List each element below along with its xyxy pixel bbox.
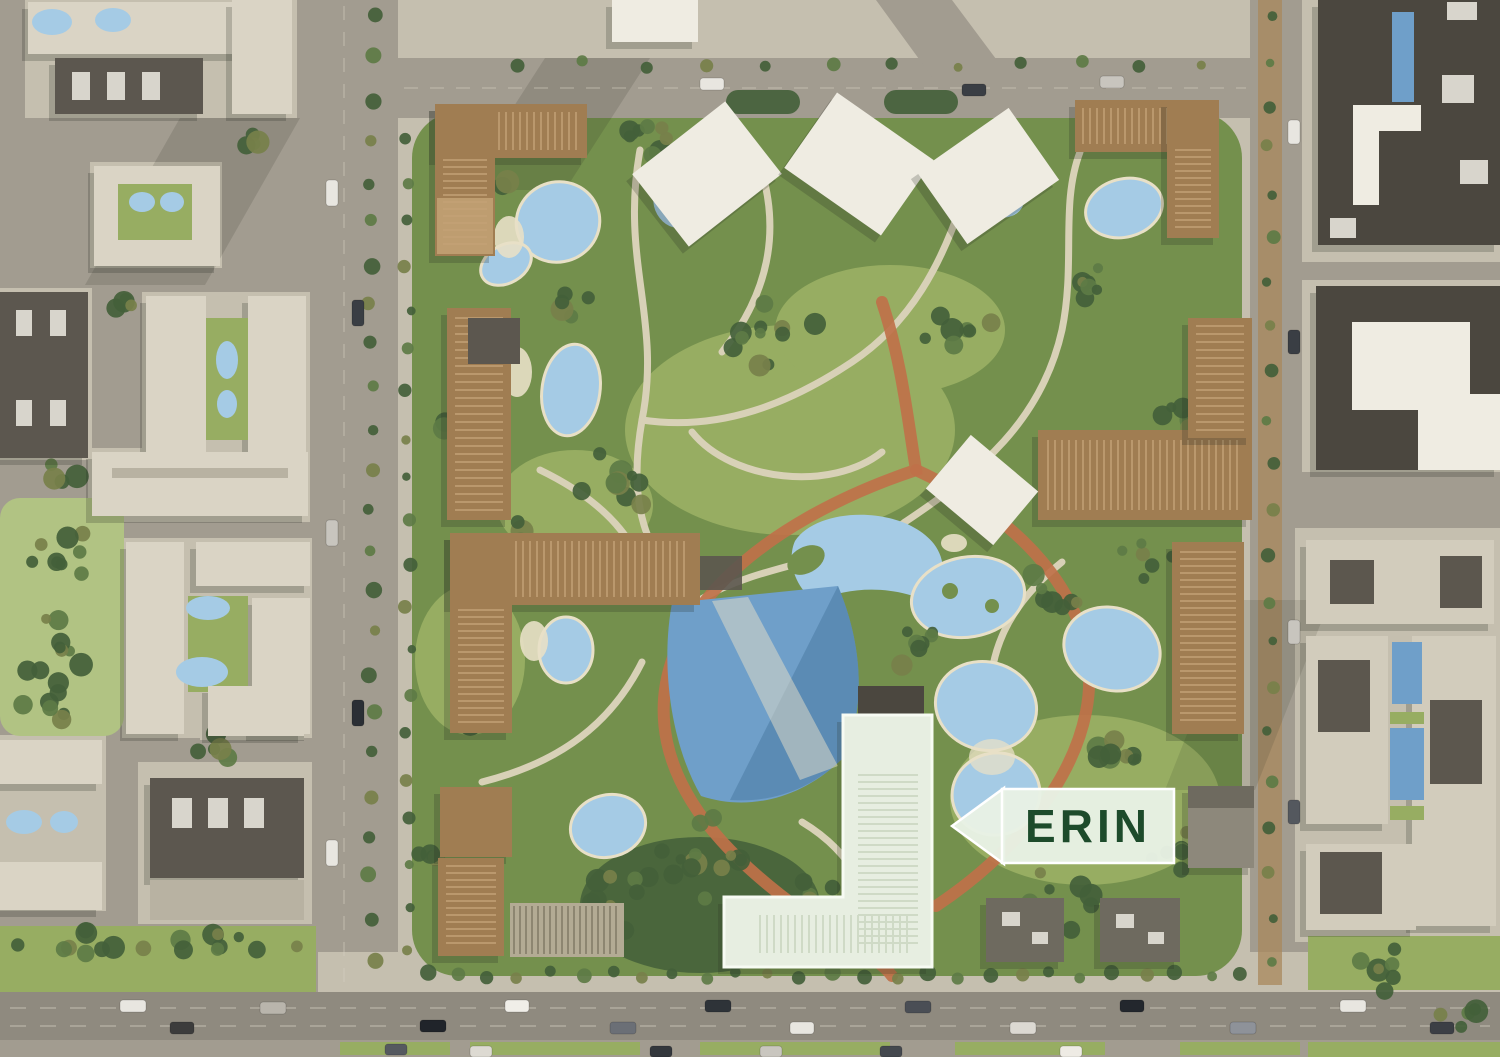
pool-deck	[520, 621, 548, 661]
pool-deck	[494, 216, 524, 258]
building	[1100, 898, 1180, 962]
tree	[420, 964, 436, 980]
tree	[682, 858, 701, 877]
tree	[631, 495, 651, 515]
south-road	[0, 992, 1500, 1040]
tree	[78, 922, 94, 938]
courtyard	[1390, 806, 1424, 820]
tree	[363, 831, 375, 843]
tree	[1100, 744, 1121, 765]
tree	[365, 546, 376, 557]
tree	[69, 653, 93, 677]
car	[1100, 76, 1124, 88]
tree	[1267, 957, 1277, 967]
pool-island	[942, 583, 958, 599]
tree	[1268, 11, 1278, 21]
tree	[1262, 416, 1272, 426]
tree	[749, 354, 771, 376]
tree	[212, 928, 224, 940]
tree	[629, 884, 645, 900]
tree	[944, 336, 963, 355]
tree	[364, 258, 381, 275]
tree	[952, 973, 964, 985]
tree	[1233, 967, 1247, 981]
tree	[1267, 681, 1280, 694]
tree	[1136, 547, 1150, 561]
building	[196, 542, 310, 586]
verge	[884, 90, 958, 114]
roof-unit	[1032, 932, 1048, 944]
building	[0, 740, 102, 784]
tree	[902, 626, 913, 637]
verge	[700, 1042, 890, 1055]
terrace	[437, 198, 493, 254]
tree	[636, 972, 648, 984]
tree	[363, 336, 376, 349]
tree	[1267, 503, 1280, 516]
tree	[735, 854, 747, 866]
tree	[892, 973, 904, 985]
tree	[593, 447, 606, 460]
roof-wing	[468, 318, 520, 364]
tree	[755, 328, 766, 339]
tree	[366, 746, 377, 757]
car	[1230, 1022, 1256, 1034]
car	[650, 1046, 672, 1057]
tree	[775, 327, 790, 342]
courtyard-pool	[6, 810, 42, 834]
tree	[698, 891, 712, 905]
car	[962, 84, 986, 96]
tree	[367, 953, 383, 969]
roof-unit	[1447, 2, 1477, 20]
tree	[368, 8, 383, 23]
roof-unit	[208, 798, 228, 828]
tree	[663, 865, 683, 885]
park-building	[1172, 542, 1244, 734]
tree	[361, 667, 377, 683]
tree	[51, 556, 63, 568]
tree	[1014, 57, 1026, 69]
tree	[1267, 230, 1281, 244]
roof-detail	[1188, 786, 1254, 808]
building	[146, 296, 206, 458]
tree	[982, 313, 1001, 332]
tree	[41, 614, 51, 624]
car	[385, 1044, 407, 1055]
tower-roof	[858, 686, 924, 716]
building	[986, 898, 1064, 962]
tree	[640, 119, 655, 134]
tree	[407, 307, 416, 316]
building	[150, 880, 304, 920]
courtyard	[1390, 712, 1424, 724]
car	[1288, 120, 1300, 144]
tree	[641, 62, 653, 74]
tree	[291, 941, 303, 953]
roof-unit	[107, 72, 125, 100]
park-building	[450, 533, 512, 733]
tree	[365, 214, 377, 226]
tree	[404, 689, 417, 702]
car	[705, 1000, 731, 1012]
tree	[35, 538, 48, 551]
tree	[1062, 921, 1080, 939]
tree	[1128, 754, 1139, 765]
tree	[1016, 968, 1029, 981]
tree	[74, 566, 89, 581]
rooftop-pool	[95, 8, 131, 32]
tree	[136, 941, 152, 957]
tree	[248, 941, 266, 959]
tree	[1093, 263, 1103, 273]
car	[352, 300, 364, 326]
building	[208, 686, 304, 736]
roof-unit	[50, 310, 66, 336]
tree	[1207, 971, 1217, 981]
tree	[1261, 548, 1275, 562]
tree	[1117, 546, 1127, 556]
tree	[94, 941, 110, 957]
tree	[1265, 364, 1279, 378]
tree	[496, 170, 520, 194]
tree	[573, 482, 591, 500]
pool-deck	[969, 739, 1015, 775]
tree	[56, 941, 72, 957]
pool-deck	[941, 534, 967, 552]
tree	[1022, 564, 1044, 586]
tree	[1373, 963, 1384, 974]
building	[0, 292, 88, 458]
tree	[190, 743, 206, 759]
tree	[545, 966, 556, 977]
tree	[1074, 973, 1085, 984]
car	[790, 1022, 814, 1034]
tree	[891, 654, 912, 675]
tree	[1269, 914, 1278, 923]
courtyard-pool	[50, 811, 78, 833]
roof-unit	[1002, 912, 1020, 926]
tree	[403, 178, 414, 189]
tree	[402, 945, 412, 955]
tree	[368, 425, 378, 435]
car	[326, 840, 338, 866]
pool-island	[985, 599, 999, 613]
tree	[700, 59, 713, 72]
car	[610, 1022, 636, 1034]
courtyard-pool	[1390, 728, 1424, 800]
roof-unit	[244, 798, 264, 828]
roof-wing	[1318, 660, 1370, 732]
tree	[405, 860, 414, 869]
tree	[655, 121, 668, 134]
tree	[403, 811, 416, 824]
tree	[910, 640, 927, 657]
roof-wing	[1320, 852, 1382, 914]
tree	[370, 625, 380, 635]
tree	[1385, 957, 1399, 971]
tree	[1262, 726, 1271, 735]
tree	[398, 600, 412, 614]
tree	[1145, 558, 1160, 573]
roof-detail	[112, 468, 288, 478]
building	[248, 296, 306, 458]
courtyard	[118, 184, 192, 240]
tree	[827, 58, 841, 72]
tree	[1141, 968, 1154, 981]
tree	[365, 47, 381, 63]
tree	[1455, 1021, 1467, 1033]
tree	[1262, 866, 1275, 879]
building	[1418, 394, 1500, 470]
tree	[1076, 55, 1089, 68]
roof-unit	[172, 798, 192, 828]
car	[352, 700, 364, 726]
tree	[364, 791, 378, 805]
roof-unit	[1460, 160, 1488, 184]
roof-wing	[1440, 556, 1482, 608]
tree	[1263, 597, 1275, 609]
tree	[366, 463, 380, 477]
tree	[654, 843, 669, 858]
tree	[606, 472, 627, 493]
verge	[726, 90, 800, 114]
tree	[365, 913, 379, 927]
tree	[43, 468, 65, 490]
tree	[920, 333, 931, 344]
tree	[1264, 101, 1276, 113]
tree	[667, 968, 678, 979]
tree	[1035, 867, 1046, 878]
tree	[48, 610, 68, 630]
car	[170, 1022, 194, 1034]
verge	[1180, 1042, 1300, 1055]
tree	[365, 135, 376, 146]
car	[905, 1001, 931, 1013]
tree	[400, 774, 413, 787]
tree	[1136, 538, 1146, 548]
tree	[1138, 573, 1149, 584]
tree	[365, 93, 381, 109]
tree	[17, 661, 37, 681]
tree	[368, 380, 379, 391]
tree	[1266, 59, 1274, 67]
tree	[1388, 942, 1401, 955]
building	[0, 862, 102, 910]
tree	[963, 324, 976, 337]
roof-unit	[50, 400, 66, 426]
tree	[401, 435, 410, 444]
car	[1010, 1022, 1036, 1034]
tree	[582, 291, 595, 304]
roof-wing	[1330, 560, 1374, 604]
tree	[1041, 591, 1063, 613]
courtyard-pool	[1392, 642, 1422, 704]
courtyard-pool	[129, 192, 155, 212]
park-structure	[700, 556, 742, 590]
tree	[756, 295, 774, 313]
tree	[1352, 952, 1370, 970]
building	[612, 0, 698, 42]
tree	[73, 545, 86, 558]
tree	[804, 313, 826, 335]
roof-unit	[1116, 914, 1134, 928]
tree	[608, 966, 620, 978]
car	[880, 1046, 902, 1057]
roof-unit	[1330, 218, 1356, 238]
car	[1430, 1022, 1454, 1034]
tree	[363, 179, 374, 190]
lawn	[1308, 936, 1500, 990]
building	[92, 452, 308, 516]
tree	[511, 59, 525, 73]
tree	[1262, 821, 1275, 834]
tree	[13, 695, 32, 714]
tree	[50, 684, 67, 701]
tree	[246, 130, 269, 153]
car	[760, 1046, 782, 1057]
park-building	[1167, 100, 1219, 238]
rooftop-pool	[32, 9, 72, 35]
courtyard-pool	[186, 596, 230, 620]
tree	[26, 556, 38, 568]
tree	[511, 515, 525, 529]
tree	[1261, 139, 1273, 151]
tree	[555, 295, 569, 309]
roof-unit	[72, 72, 90, 100]
car	[700, 78, 724, 90]
tree	[56, 527, 78, 549]
building	[232, 0, 292, 114]
car	[1288, 800, 1300, 824]
lawn	[1308, 1042, 1500, 1057]
tree	[1269, 637, 1278, 646]
car	[470, 1046, 492, 1057]
tree	[885, 58, 897, 70]
tree	[760, 61, 771, 72]
car	[326, 520, 338, 546]
tree	[211, 943, 224, 956]
tree	[406, 903, 415, 912]
tree	[399, 133, 411, 145]
tree	[367, 704, 382, 719]
tree	[603, 870, 617, 884]
car	[1288, 330, 1300, 354]
tree	[401, 214, 412, 225]
tree	[1464, 999, 1488, 1023]
tree	[399, 727, 410, 738]
tree	[726, 850, 736, 860]
courtyard-pool	[176, 657, 228, 687]
tree	[1266, 776, 1279, 789]
tree	[77, 945, 95, 963]
tree	[402, 342, 414, 354]
courtyard-pool	[160, 192, 184, 212]
tree	[54, 642, 66, 654]
roof-unit	[16, 400, 32, 426]
roof-wing	[1430, 700, 1482, 784]
tree	[42, 700, 58, 716]
park-building	[440, 787, 512, 857]
courtyard-pool	[216, 341, 238, 379]
tree	[125, 300, 137, 312]
tree	[1044, 884, 1054, 894]
tree	[1376, 982, 1394, 1000]
tree	[1265, 320, 1275, 330]
tree	[1132, 60, 1145, 73]
tree	[510, 972, 521, 983]
lawn-strip	[0, 926, 316, 992]
tree	[577, 968, 592, 983]
tree	[174, 940, 193, 959]
tree	[366, 582, 382, 598]
roof-unit	[1442, 75, 1474, 103]
tree	[692, 815, 709, 832]
tree	[363, 504, 374, 515]
car	[505, 1000, 529, 1012]
tree	[234, 932, 244, 942]
tree	[795, 873, 813, 891]
tree	[577, 55, 588, 66]
tree	[403, 558, 417, 572]
pool	[539, 617, 593, 683]
rooftop-pool	[1392, 12, 1414, 102]
callout-label: ERIN	[1025, 800, 1151, 852]
map-features	[0, 0, 1500, 1057]
park-building	[1188, 318, 1252, 438]
roof-unit	[142, 72, 160, 100]
tree	[619, 120, 640, 141]
tree	[408, 645, 417, 654]
tree	[1434, 1008, 1448, 1022]
roof-unit	[1148, 932, 1164, 944]
tree	[627, 471, 637, 481]
car	[1120, 1000, 1144, 1012]
tree	[402, 472, 410, 480]
tree	[11, 938, 24, 951]
tree	[735, 331, 749, 345]
tree	[65, 465, 89, 489]
tree	[1267, 191, 1277, 201]
tree	[1262, 277, 1271, 286]
tree	[1071, 597, 1082, 608]
tree	[398, 384, 411, 397]
tree	[1070, 876, 1092, 898]
car	[1060, 1046, 1082, 1057]
tree	[397, 260, 410, 273]
tree	[954, 63, 963, 72]
car	[420, 1020, 446, 1032]
car	[326, 180, 338, 206]
tree	[1267, 457, 1280, 470]
tree	[1092, 285, 1102, 295]
car	[120, 1000, 146, 1012]
verge	[470, 1042, 640, 1055]
tree	[713, 860, 730, 877]
verge	[955, 1042, 1105, 1055]
tree	[403, 513, 416, 526]
roof-unit	[16, 310, 32, 336]
tree	[480, 971, 493, 984]
tree	[1386, 970, 1401, 985]
car	[260, 1002, 286, 1014]
tree	[1197, 61, 1206, 70]
aerial-site-plan: ERIN	[0, 0, 1500, 1057]
building	[126, 542, 184, 734]
car	[1340, 1000, 1366, 1012]
car	[1288, 620, 1300, 644]
tree	[360, 866, 376, 882]
